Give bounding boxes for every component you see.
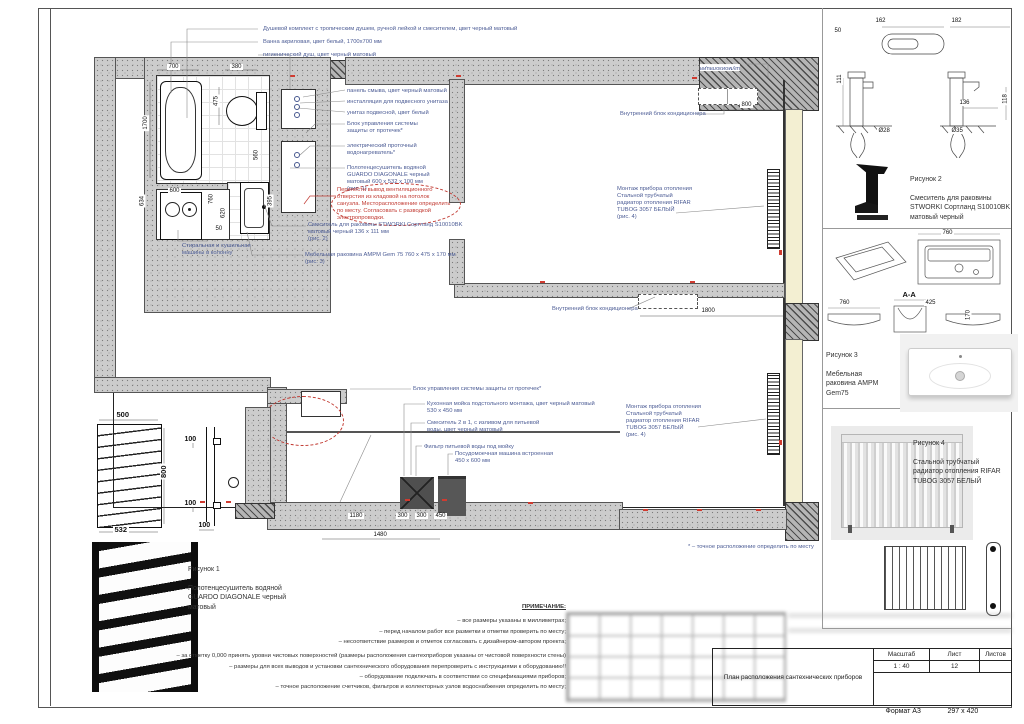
callout-radiator-bottom: Монтаж прибора отопления Стальной трубча… xyxy=(626,404,701,439)
callout-footnote: * – точное расположение определить по ме… xyxy=(688,544,814,551)
callout-flush-panel: панель смыва, цвет черный матовый xyxy=(347,88,447,95)
panel-divider-vertical xyxy=(822,8,823,628)
callout-water-filter: Фильтр питьевой воды под мойку xyxy=(424,444,514,451)
note-item: – размеры для всех выводов и установки с… xyxy=(60,662,566,672)
fig3-faucet-hole-icon xyxy=(959,355,962,358)
dim-ac-top: 800 xyxy=(740,102,753,108)
callout-vent-note: Перенести вывод вентиляционного отверсти… xyxy=(337,187,450,222)
drawing-title: План расположения сантехнических приборо… xyxy=(724,674,862,681)
wall-left xyxy=(95,58,115,390)
callout-dishwasher: Посудомоечная машина встроенная 450 х 60… xyxy=(455,451,553,465)
format-label: Формат А3 xyxy=(884,708,922,715)
fig4-photo-foot-left xyxy=(848,525,852,533)
sheets-label: Листов xyxy=(985,651,1006,658)
fig2-dim-111: 111 xyxy=(837,73,843,85)
outlet-mark xyxy=(697,509,702,511)
fig3-caption-text: Мебельная раковина AMPM Gem75 xyxy=(826,370,878,398)
dim-wc-width: 380 xyxy=(230,64,243,70)
callout-leak-block-2: Блок управления системы защиты от протеч… xyxy=(413,386,541,393)
dim-395: 395 xyxy=(268,194,274,207)
fig1-floor-section xyxy=(236,504,274,518)
scale-label: Масштаб xyxy=(888,651,915,658)
dishwasher xyxy=(438,476,466,516)
wall-top-main xyxy=(346,58,706,84)
vanity-sink xyxy=(240,182,269,234)
outlet-mark xyxy=(456,75,461,77)
dim-washer: 600 xyxy=(168,188,181,194)
washing-machines xyxy=(160,192,202,240)
plumbing-valve-icon xyxy=(294,104,300,110)
fig2-caption-text: Смеситель для раковины STWORKI Сортланд … xyxy=(910,194,1010,222)
drawing-sheet: Душевой комплект с тропическим душем, ру… xyxy=(0,0,1024,724)
fig3-dim-170: 170 xyxy=(966,308,972,321)
fig1-bracket-top xyxy=(213,438,221,445)
washer-drum-icon xyxy=(165,202,180,217)
note-item: – за отметку 0,000 принять уровни чистов… xyxy=(60,651,566,661)
fig4-caption-text: Стальной трубчатый радиатор отопления RI… xyxy=(913,458,1001,486)
callout-basin-mixer: Смеситель для раковины STWORKI Сортланд … xyxy=(308,222,462,243)
scale-value: 1 : 40 xyxy=(894,663,910,670)
dim-620: 620 xyxy=(221,206,227,219)
outlet-mark xyxy=(405,499,410,501)
fig1-dim-height: 800 xyxy=(160,464,168,480)
fig2-dim-136: 136 xyxy=(958,100,971,106)
fig1-dim-width2: 532 xyxy=(113,526,129,534)
callout-wc: унитаз подвесной, цвет белый xyxy=(347,110,429,117)
fig1-dim-offset2: 100 xyxy=(183,500,198,507)
callout-water-heater: электрический проточный водонагреватель* xyxy=(347,143,417,157)
sheet-value: 12 xyxy=(951,663,958,670)
format-size: 297 х 420 xyxy=(946,708,980,715)
outlet-mark xyxy=(528,502,533,504)
callout-shower: Душевой комплект с тропическим душем, ру… xyxy=(263,26,517,33)
revision-cloud-kitchen xyxy=(262,396,344,446)
outlet-mark xyxy=(540,281,545,283)
notes-heading: ПРИМЕЧАНИЕ: xyxy=(60,602,566,612)
bathtub xyxy=(160,81,202,180)
outlet-mark xyxy=(290,75,295,77)
titleblock-title-cell: План расположения сантехнических приборо… xyxy=(712,648,874,706)
dim-kitchen-300a: 300 xyxy=(396,513,409,519)
plumbing-valve-icon xyxy=(294,96,300,102)
fig4-side-bushing-top xyxy=(990,546,996,552)
dim-ac-mid: 1800 xyxy=(700,308,716,314)
fig1-valve-icon xyxy=(228,477,239,488)
stamp-blurred-right xyxy=(788,602,1012,644)
fig3-title: Рисунок 3 xyxy=(826,351,878,360)
notes-block: ПРИМЕЧАНИЕ: – все размеры указаны в милл… xyxy=(60,602,566,693)
dim-wc-depth: 475 xyxy=(214,94,220,107)
wall-middle xyxy=(455,284,784,297)
fig2-dim-162: 162 xyxy=(874,18,887,24)
wall-bottom-left xyxy=(95,378,270,392)
callout-basin: Мебельная раковина AMPM Gem 75 760 х 475… xyxy=(305,252,456,266)
fig1-front-view xyxy=(97,424,162,528)
fig1-title: Рисунок 1 xyxy=(188,565,286,574)
plumbing-valve-icon xyxy=(294,112,300,118)
dim-kitchen-450: 450 xyxy=(434,513,447,519)
fig2-dim-118: 118 xyxy=(1002,93,1008,106)
vanity-faucet-icon xyxy=(262,205,266,209)
ac-unit-divider xyxy=(727,89,728,104)
outlet-mark xyxy=(226,501,231,503)
callout-installation: инсталляция для подвесного унитаза xyxy=(347,99,448,106)
fig4-front-drawing xyxy=(884,546,966,610)
fig2-dim-182: 182 xyxy=(950,18,963,24)
fig1-dim-width: 500 xyxy=(115,411,131,419)
fig2-dim-d28: Ø28 xyxy=(877,128,891,134)
fig1-dim-offset1: 100 xyxy=(183,436,198,443)
fig1-bracket-bottom xyxy=(213,502,221,509)
outlet-mark xyxy=(643,509,648,511)
note-item: – оборудование подключать в соответствии… xyxy=(60,672,566,682)
dim-50: 50 xyxy=(214,226,224,232)
dim-bath-width: 700 xyxy=(167,64,180,70)
dim-storage: 634 xyxy=(140,194,146,207)
callout-bath: Ванна акриловая, цвет белый, 1700х700 мм xyxy=(263,39,382,46)
dryer-drum-icon xyxy=(182,202,197,217)
fig3-drain-icon xyxy=(955,371,965,381)
fig4-title: Рисунок 4 xyxy=(913,439,1001,448)
callout-hygienic-shower: гигиенический душ, цвет черный матовый xyxy=(263,52,376,59)
callout-ac-unit-mid: Внутренний блок кондиционера xyxy=(552,306,638,313)
fig2-dim-d35: Ø35 xyxy=(950,128,964,134)
sheet-frame-margin-line xyxy=(50,8,51,706)
dim-kitchen-1480: 1480 xyxy=(372,532,388,538)
plumbing-outlet-icon xyxy=(294,152,300,158)
window-right-2 xyxy=(786,340,802,503)
wall-bottom-right xyxy=(620,510,786,529)
dim-760: 760 xyxy=(209,192,215,205)
titleblock-empty-cell xyxy=(873,672,1012,706)
fig3-photo-sink xyxy=(908,348,1012,396)
callout-washer-column: Стиральная и сушильная машины в колонну xyxy=(182,243,251,257)
sheet-label: Лист xyxy=(948,651,962,658)
fig3-photo xyxy=(900,334,1018,412)
dim-bath-length: 1700 xyxy=(143,115,149,131)
callout-soundproofing: шумоизоляция xyxy=(700,64,740,71)
fig2-caption: Рисунок 2 Смеситель для раковины STWORKI… xyxy=(910,166,1010,231)
fig4-caption: Рисунок 4 Стальной трубчатый радиатор от… xyxy=(913,430,1001,495)
wall-corner-bottom-right xyxy=(786,503,818,540)
fig1-wall-section xyxy=(246,408,270,504)
callout-kitchen-mixer: Смеситель 2 в 1, с изливом для питьевой … xyxy=(427,420,539,434)
outlet-mark xyxy=(690,281,695,283)
note-item: – перед началом работ все разметки и отм… xyxy=(60,627,566,637)
callout-leak-block: Блок управления системы защиты от протеч… xyxy=(347,121,418,135)
ac-unit-mid xyxy=(638,294,698,309)
toilet xyxy=(226,96,258,126)
radiator-symbol-2 xyxy=(768,374,779,454)
note-item: – точное расположение счетчиков, фильтро… xyxy=(60,682,566,692)
wall-right-mid xyxy=(786,304,818,340)
fig2-title: Рисунок 2 xyxy=(910,175,1010,184)
vanity-sink-basin xyxy=(244,188,264,228)
fig3-section-label: A-A xyxy=(901,291,917,299)
callout-kitchen-sink: Кухонная мойка подстольного монтажа, цве… xyxy=(427,401,595,415)
fig3-dim-w-760: 760 xyxy=(838,300,851,306)
dim-560: 560 xyxy=(254,148,260,161)
note-item: – несоответствие размеров и отметок согл… xyxy=(60,637,566,647)
dim-kitchen-1180: 1180 xyxy=(348,513,364,519)
fig3-caption: Рисунок 3 Мебельная раковина AMPM Gem75 xyxy=(826,342,878,407)
fig4-photo-foot-right xyxy=(950,525,954,533)
window-right-1 xyxy=(786,110,802,304)
bathtub-basin xyxy=(165,87,196,173)
outlet-mark xyxy=(692,77,697,79)
toilet-cistern xyxy=(256,92,267,130)
wall-hall-top xyxy=(450,80,464,202)
outlet-mark xyxy=(200,501,205,503)
outlet-mark xyxy=(779,250,782,255)
outlet-mark xyxy=(779,440,782,445)
kitchen-sink xyxy=(400,477,434,509)
dim-kitchen-300b: 300 xyxy=(415,513,428,519)
fig1-dim-offset3: 100 xyxy=(197,522,212,529)
fig3-dim-top-760: 760 xyxy=(941,230,954,236)
callout-ac-unit-top: Внутренний блок кондиционера xyxy=(620,111,706,118)
fig3-dim-425: 425 xyxy=(924,300,937,306)
outlet-mark xyxy=(756,509,761,511)
fig2-dim-50: 50 xyxy=(833,28,843,34)
plumbing-outlet-icon xyxy=(294,162,300,168)
radiator-symbol-1 xyxy=(768,170,779,248)
outlet-mark xyxy=(442,499,447,501)
callout-radiator-top: Монтаж прибора отопления Стальной трубча… xyxy=(617,186,692,221)
note-item: – все размеры указаны в миллиметрах; xyxy=(60,616,566,626)
dryer-dial-icon xyxy=(188,208,191,211)
